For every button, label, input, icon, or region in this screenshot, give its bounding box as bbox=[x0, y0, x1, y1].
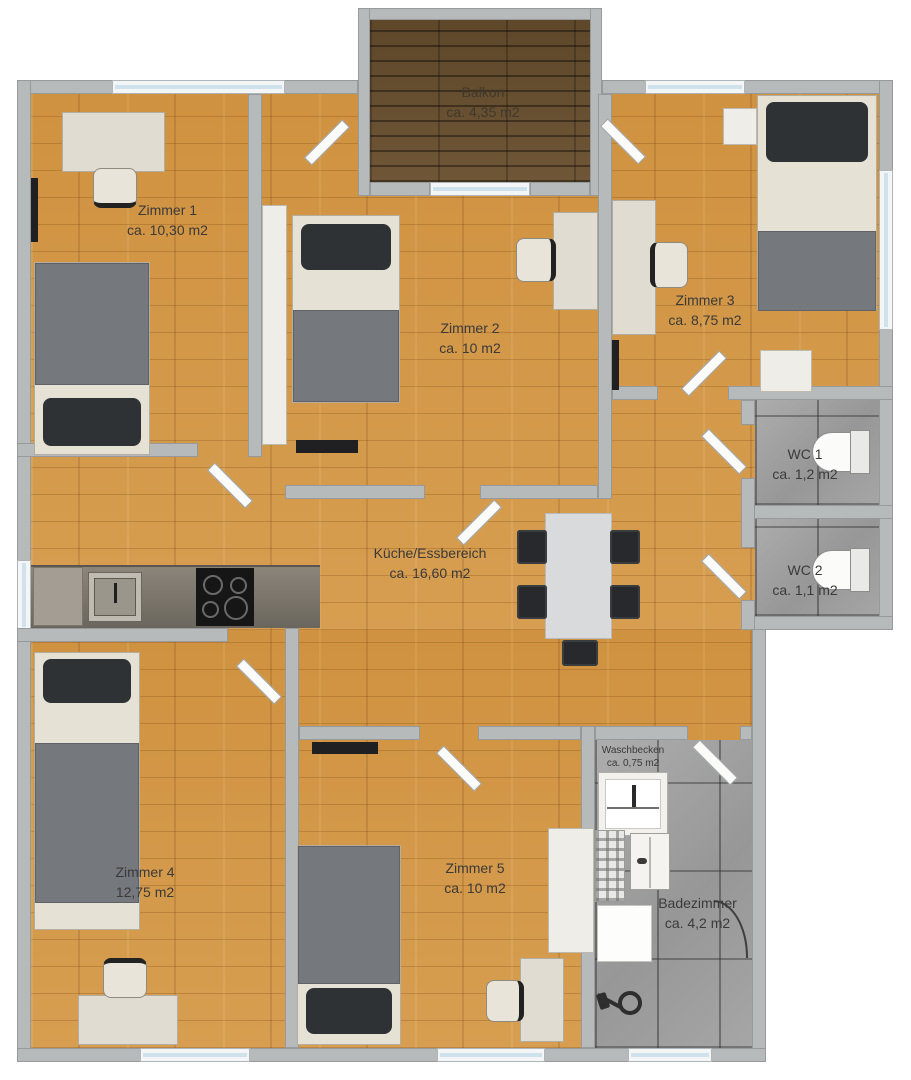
desk bbox=[62, 112, 165, 172]
cabinet bbox=[760, 350, 812, 392]
room-label-badezimmer: Badezimmerca. 4,2 m2 bbox=[625, 893, 770, 934]
sideboard bbox=[296, 440, 358, 453]
fridge bbox=[33, 567, 83, 626]
wall-segment bbox=[740, 726, 752, 740]
wall-segment bbox=[879, 80, 893, 630]
window bbox=[645, 80, 745, 94]
wall-segment bbox=[752, 616, 766, 1062]
bed bbox=[292, 215, 400, 403]
nightstand bbox=[723, 108, 757, 145]
wall-segment bbox=[299, 726, 420, 740]
wall-segment bbox=[741, 505, 893, 519]
chair bbox=[650, 242, 688, 288]
desk bbox=[78, 995, 178, 1045]
desk bbox=[553, 212, 598, 310]
dining-table bbox=[545, 513, 612, 639]
wall-segment bbox=[478, 726, 581, 740]
room-label-zimmer5: Zimmer 5ca. 10 m2 bbox=[385, 858, 565, 899]
window bbox=[140, 1048, 250, 1062]
dining-chair bbox=[562, 640, 598, 666]
bed bbox=[34, 262, 150, 455]
room-label-balkon: Balkonca. 4,35 m2 bbox=[388, 82, 578, 123]
dining-chair bbox=[610, 585, 640, 619]
room-label-wc2: WC 2ca. 1,1 m2 bbox=[750, 560, 860, 601]
window bbox=[112, 80, 285, 94]
chair bbox=[516, 238, 556, 282]
wall-segment bbox=[17, 628, 228, 642]
bed bbox=[757, 95, 877, 310]
wall-segment bbox=[595, 726, 688, 740]
wall-segment bbox=[741, 478, 755, 548]
room-label-zimmer3: Zimmer 3ca. 8,75 m2 bbox=[615, 290, 795, 331]
desk bbox=[520, 958, 564, 1042]
window bbox=[437, 1048, 545, 1062]
dining-chair bbox=[610, 530, 640, 564]
radiator bbox=[31, 178, 38, 242]
chair bbox=[103, 958, 147, 998]
floor-plan: Balkonca. 4,35 m2 Zimmer 1ca. 10,30 m2 Z… bbox=[0, 0, 911, 1080]
chair bbox=[486, 980, 524, 1022]
shower-fixture bbox=[596, 983, 652, 1019]
bathroom-sink bbox=[598, 772, 668, 836]
stove bbox=[196, 568, 254, 626]
room-label-waschbecken: Waschbeckenca. 0,75 m2 bbox=[594, 744, 672, 770]
towel bbox=[595, 830, 625, 902]
kitchen-sink bbox=[88, 572, 142, 622]
wall-segment bbox=[530, 182, 590, 196]
radiator bbox=[612, 340, 619, 390]
wall-segment bbox=[480, 485, 598, 499]
wall-segment bbox=[741, 400, 755, 425]
wall-segment bbox=[598, 94, 612, 499]
wall-segment bbox=[358, 8, 602, 20]
window bbox=[628, 1048, 712, 1062]
room-label-zimmer1: Zimmer 1ca. 10,30 m2 bbox=[75, 200, 260, 241]
wall-segment bbox=[358, 8, 370, 196]
wall-segment bbox=[248, 94, 262, 457]
washing-machine bbox=[630, 833, 670, 890]
wall-segment bbox=[285, 485, 425, 499]
sideboard bbox=[312, 742, 378, 754]
room-label-zimmer2: Zimmer 2ca. 10 m2 bbox=[380, 318, 560, 359]
wall-segment bbox=[741, 600, 755, 630]
window bbox=[879, 170, 893, 330]
window bbox=[17, 560, 31, 630]
wall-segment bbox=[370, 182, 430, 196]
wall-segment bbox=[741, 616, 893, 630]
balcony-door-window bbox=[430, 182, 530, 196]
room-label-wc1: WC 1ca. 1,2 m2 bbox=[750, 444, 860, 485]
dining-chair bbox=[517, 585, 547, 619]
wardrobe bbox=[262, 205, 287, 445]
room-label-zimmer4: Zimmer 412,75 m2 bbox=[55, 862, 235, 903]
room-label-kueche: Küche/Essbereichca. 16,60 m2 bbox=[330, 543, 530, 584]
